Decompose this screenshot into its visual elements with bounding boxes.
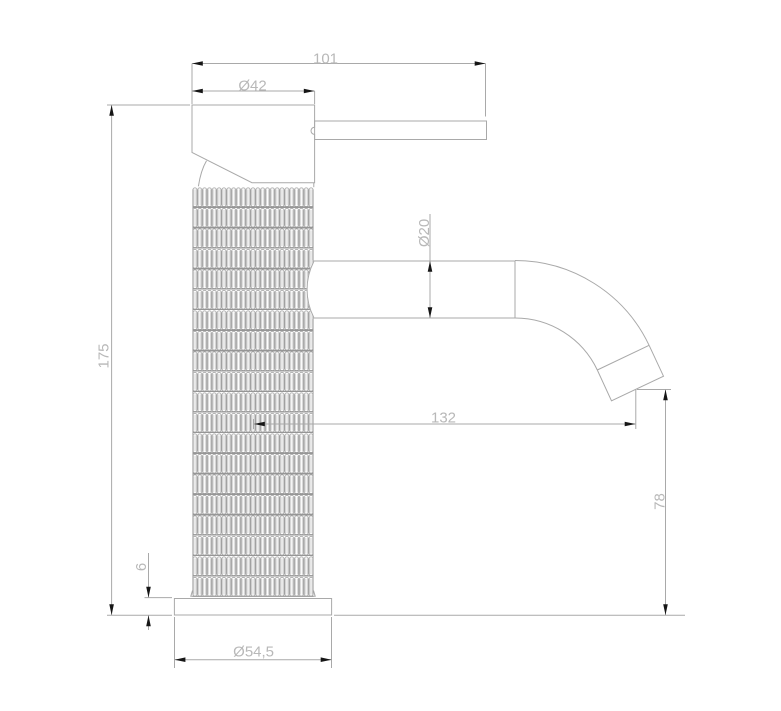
svg-text:Ø20: Ø20 (416, 219, 433, 247)
svg-text:132: 132 (431, 409, 456, 426)
svg-text:175: 175 (96, 343, 113, 368)
svg-text:101: 101 (313, 50, 338, 67)
svg-text:Ø54,5: Ø54,5 (233, 643, 274, 660)
svg-text:6: 6 (133, 563, 150, 571)
svg-text:Ø42: Ø42 (238, 78, 266, 95)
svg-text:78: 78 (652, 493, 669, 510)
